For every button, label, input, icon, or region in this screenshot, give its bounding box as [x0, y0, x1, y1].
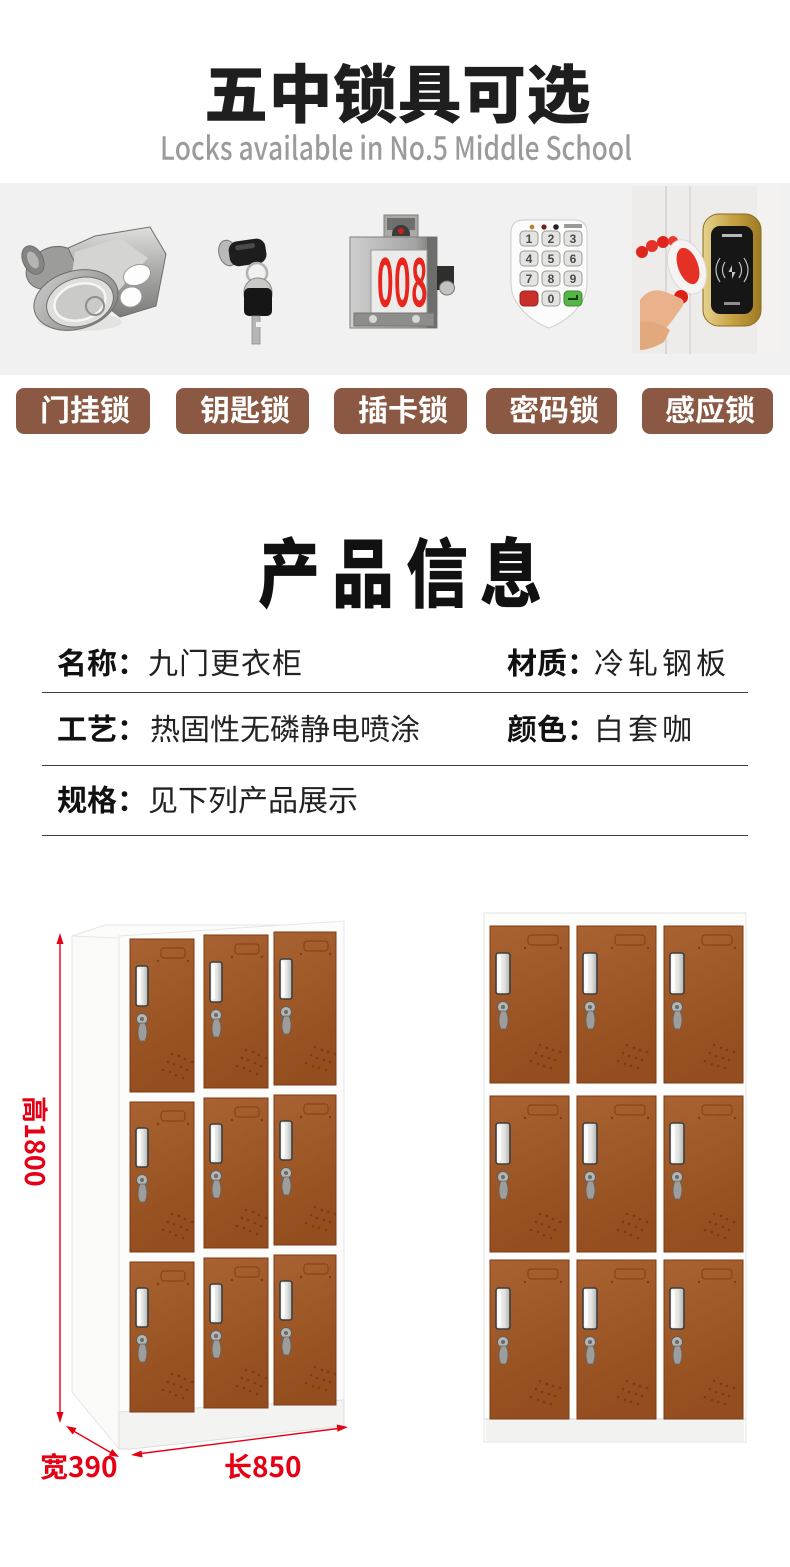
svg-text:9: 9	[570, 272, 577, 286]
svg-text:4: 4	[526, 252, 533, 266]
svg-text:6: 6	[570, 252, 577, 266]
svg-text:5: 5	[548, 252, 555, 266]
svg-text:2: 2	[548, 232, 555, 246]
svg-text:3: 3	[570, 232, 577, 246]
svg-text:8: 8	[548, 272, 555, 286]
svg-text:1: 1	[526, 232, 533, 246]
svg-text:0: 0	[548, 292, 555, 306]
svg-text:7: 7	[526, 272, 533, 286]
